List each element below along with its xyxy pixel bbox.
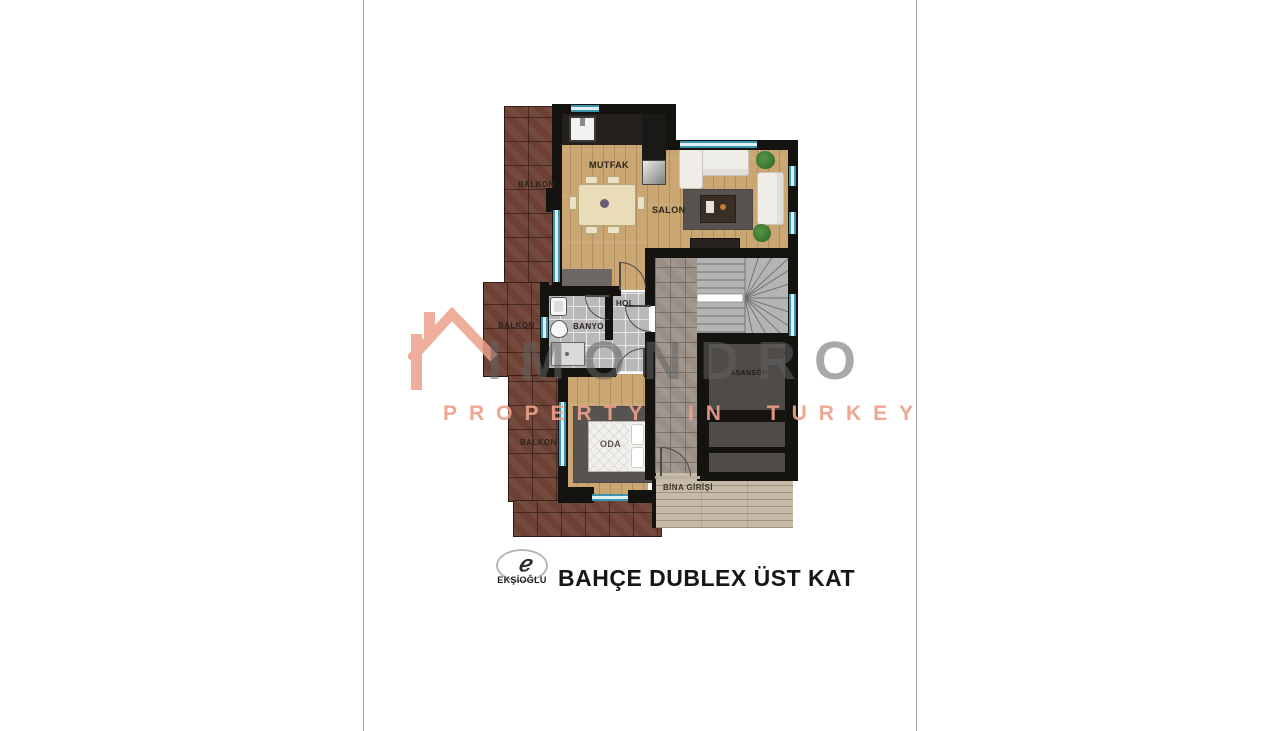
- pillow: [631, 447, 644, 468]
- table-centerpiece: [600, 199, 609, 208]
- window: [592, 494, 628, 501]
- door-leaf: [619, 262, 621, 290]
- dining-chair: [585, 176, 598, 184]
- page-right-rule: [916, 0, 917, 731]
- dining-chair: [607, 176, 620, 184]
- staircase: [697, 256, 789, 336]
- wall-segment: [546, 188, 562, 212]
- plan-title: BAHÇE DUBLEX ÜST KAT: [558, 565, 855, 592]
- plant-icon: [756, 151, 775, 169]
- window: [571, 105, 599, 112]
- room-label-balkon-top: BALKON: [518, 180, 555, 189]
- floor-plan-page: BALKON BALKON BALKON MUTFAK SALON HOL BA…: [0, 0, 1280, 731]
- entrance-deck: [655, 473, 793, 528]
- room-label-salon: SALON: [652, 205, 686, 215]
- wall-segment: [645, 248, 798, 258]
- room-label-oda: ODA: [600, 439, 621, 449]
- shaft-divider: [709, 447, 785, 453]
- fridge: [642, 160, 666, 185]
- watermark-tagline: PROPERTY IN TURKEY: [443, 402, 925, 426]
- window: [789, 212, 796, 234]
- dining-chair: [637, 196, 645, 210]
- wall-segment: [628, 490, 655, 503]
- room-label-balkon-bottom: BALKON: [520, 438, 557, 447]
- sofa-right: [757, 172, 784, 225]
- dining-chair: [607, 226, 620, 234]
- coffee-table-decor: [720, 204, 726, 210]
- pillow: [631, 424, 644, 445]
- kitchen-faucet: [580, 118, 585, 126]
- room-label-balkon-mid: BALKON: [498, 321, 535, 330]
- entrance-threshold: [655, 476, 700, 479]
- dining-chair: [585, 226, 598, 234]
- watermark-brand: IMONDRO: [487, 330, 874, 392]
- wall-segment: [558, 487, 594, 503]
- kitchen-counter-corner: [642, 114, 666, 160]
- coffee-table-decor: [706, 201, 714, 213]
- builder-logo-name: EKŞİOĞLU: [492, 575, 552, 585]
- room-label-hol: HOL: [616, 299, 634, 308]
- stair-landing-rail: [697, 294, 743, 302]
- window: [553, 210, 560, 282]
- builder-logo-monogram: ℯ: [518, 551, 531, 577]
- sofa-chaise: [679, 149, 703, 189]
- window: [789, 166, 796, 186]
- bath-sink-basin: [554, 301, 563, 312]
- room-label-bina-girisi: BİNA GİRİŞİ: [663, 483, 713, 492]
- plant-icon: [753, 224, 771, 242]
- page-left-rule: [363, 0, 364, 731]
- wall-segment: [652, 473, 656, 528]
- entrance-door-leaf: [660, 447, 662, 477]
- wall-segment: [645, 248, 655, 306]
- window: [680, 141, 757, 148]
- door-leaf: [585, 295, 609, 297]
- dining-chair: [569, 196, 577, 210]
- balcony-apron-floor: [513, 500, 662, 537]
- room-label-mutfak: MUTFAK: [589, 160, 629, 170]
